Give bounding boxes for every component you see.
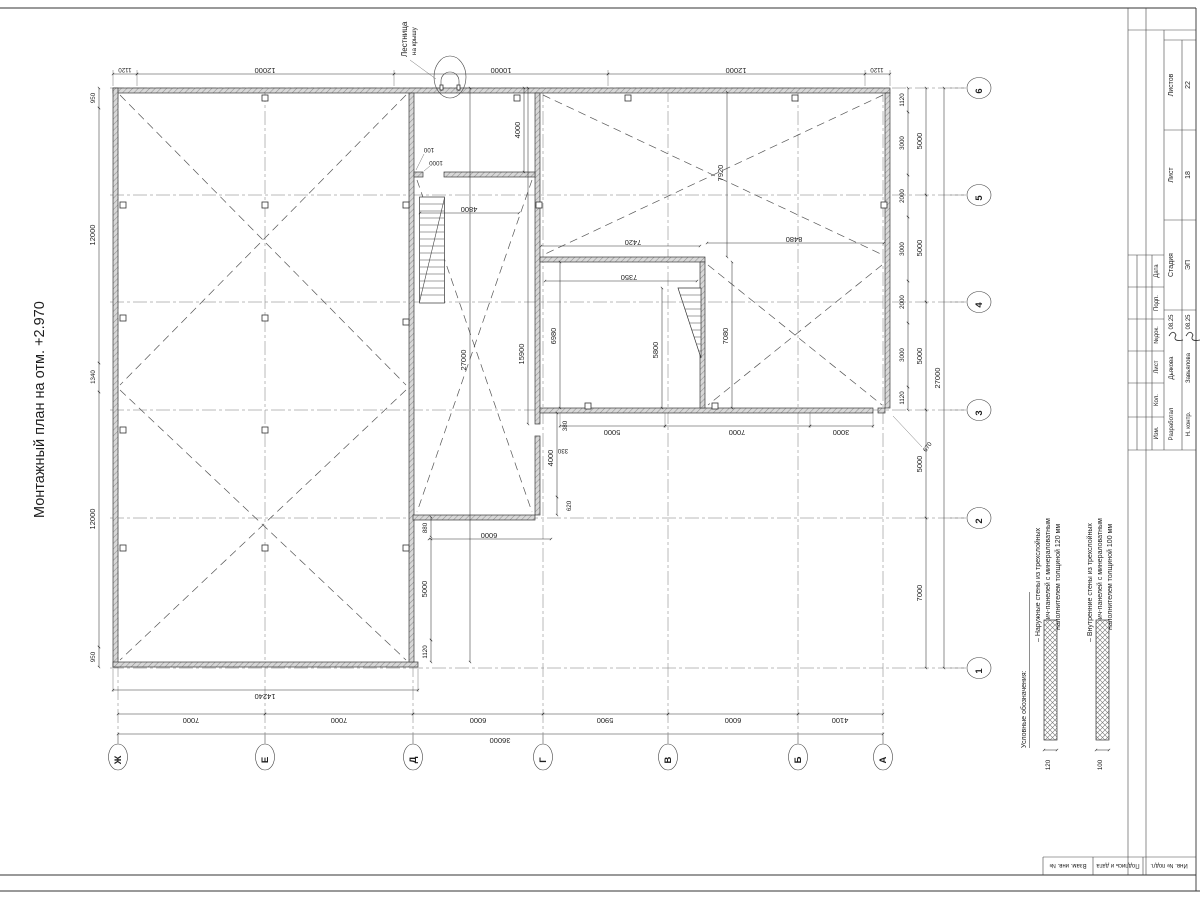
tb-col-sign: Подп. xyxy=(1154,295,1160,311)
dim-text: 7000 xyxy=(331,716,348,725)
axis-letter: А xyxy=(878,756,889,763)
dim-text: 880 xyxy=(422,522,429,533)
stair-right-room xyxy=(678,288,701,358)
ladder-callout-line1: Лестница xyxy=(400,21,409,57)
axis-letter: В xyxy=(663,756,674,763)
legend-item2-line: – Внутренние стены из трехслойных xyxy=(1086,523,1094,642)
legend-item1-line: наполнителем толщиной 120 мм xyxy=(1054,524,1062,630)
dim-text: 6000 xyxy=(481,531,498,540)
dim-text: 4000 xyxy=(546,450,555,467)
tb-col-qty: Кол. xyxy=(1154,394,1160,406)
dim-text: 4100 xyxy=(832,716,849,725)
axis-letter: Д xyxy=(408,756,419,763)
dim-text: 3000 xyxy=(899,136,906,150)
dim-text: 3000 xyxy=(899,348,906,362)
dim-text: 7000 xyxy=(915,585,924,602)
dim-text: 5000 xyxy=(420,581,429,598)
axis-letter: Ж xyxy=(113,755,124,765)
legend-wall-symbol-120 xyxy=(1044,620,1057,740)
axis-letter: Б xyxy=(793,756,804,763)
dim-text: 12000 xyxy=(255,66,276,75)
legend-title: Условные обозначения: xyxy=(1020,670,1028,748)
dim-text: 12000 xyxy=(88,509,97,530)
roof-ladder: Лестница на крышу xyxy=(400,21,466,98)
tb-dev-name: Дьякова xyxy=(1169,356,1175,380)
axis-letter: Г xyxy=(538,757,549,763)
dim-text: 12000 xyxy=(88,225,97,246)
axis-letter: Е xyxy=(260,757,271,763)
dim-text: 7000 xyxy=(183,716,200,725)
dim-text: 1120 xyxy=(870,66,884,73)
dim-text: 27000 xyxy=(459,350,468,371)
dim-text: 36000 xyxy=(490,736,511,745)
dim-text: 7080 xyxy=(721,328,730,345)
walls xyxy=(113,88,890,667)
dim-text: 8480 xyxy=(786,235,803,244)
dim-col-right-mid: 5000 5000 5000 5000 7000 xyxy=(915,88,926,668)
dim-text: 330 xyxy=(557,447,568,454)
dim-text: 1120 xyxy=(899,391,906,405)
dim-row-top: 1120 12000 10000 12000 1120 xyxy=(113,66,890,86)
dim-text: 380 xyxy=(562,420,569,431)
dim-text: 620 xyxy=(566,500,573,511)
dim-text: 2000 xyxy=(899,189,906,203)
dim-text: 5000 xyxy=(915,456,924,473)
tb-chk-label: Н. контр. xyxy=(1186,411,1192,436)
legend-wall-symbol-100 xyxy=(1096,620,1109,740)
tb-stage-value: ЭП xyxy=(1185,260,1192,270)
page-title: Монтажный план на отм. +2.970 xyxy=(32,301,48,518)
sheet-frame xyxy=(0,8,1200,891)
dim-text: 7350 xyxy=(621,273,638,282)
tb-col-doc: №док. xyxy=(1153,326,1160,344)
tb-stage-label: Стадия xyxy=(1168,253,1175,277)
drawing-sheet: Монтажный план на отм. +2.970 xyxy=(0,0,1200,900)
dim-text: 5900 xyxy=(597,716,614,725)
dim-text: 7000 xyxy=(729,428,746,437)
dim-text: 12000 xyxy=(726,66,747,75)
strip-podpis-data: Подпись и дата xyxy=(1096,862,1140,868)
dim-text: 5000 xyxy=(604,428,621,437)
dim-text: 5000 xyxy=(915,240,924,257)
axis-number: 2 xyxy=(974,518,985,523)
dim-text: 670 xyxy=(922,440,934,453)
tb-sheet-label: Лист xyxy=(1168,167,1175,183)
tb-sheet-value: 18 xyxy=(1185,171,1192,179)
axis-number: 6 xyxy=(974,88,985,93)
tb-dev-date: 08.25 xyxy=(1169,314,1175,330)
legend: Условные обозначения: – Наружные стены и… xyxy=(1020,518,1114,770)
dim-col-right-total: 27000 xyxy=(933,88,944,668)
dim-text: 950 xyxy=(90,92,97,103)
legend-item2-line: наполнителем толщиной 100 мм xyxy=(1106,524,1114,630)
dim-text: 950 xyxy=(90,651,97,662)
dim-text: 100 xyxy=(423,146,434,153)
dim-text: 7920 xyxy=(716,165,725,182)
axis-bubbles-right: 6 5 4 3 2 1 xyxy=(950,78,991,679)
dim-text: 3000 xyxy=(833,428,850,437)
dim-text: 1340 xyxy=(90,370,97,384)
bracing-diagonals xyxy=(120,95,883,660)
strip-inv-podl: Инв. № подл. xyxy=(1150,862,1188,869)
dim-text: 7420 xyxy=(625,238,642,247)
axis-number: 3 xyxy=(974,410,985,415)
dim-col-left: 950 12000 1340 12000 950 xyxy=(88,88,99,667)
dim-text: 5000 xyxy=(915,348,924,365)
title-block: Листов 22 Лист 18 Стадия ЭП Дата Подп. №… xyxy=(1128,30,1200,450)
dim-text: 5800 xyxy=(651,342,660,359)
dim-text: 1120 xyxy=(422,645,429,659)
tb-col-date: Дата xyxy=(1154,264,1160,278)
tb-chk-name: Завьялова xyxy=(1186,352,1192,383)
tb-chk-date: 08.25 xyxy=(1186,314,1192,330)
tb-col-sheet: Лист xyxy=(1154,360,1160,373)
axis-number: 5 xyxy=(974,195,985,201)
dim-text: 5000 xyxy=(915,133,924,150)
dim-text: 4800 xyxy=(461,205,478,214)
dim-text: 10000 xyxy=(491,66,512,75)
tb-dev-label: Разработал xyxy=(1169,407,1175,440)
dim-text: 14240 xyxy=(255,692,276,701)
tb-sheets-value: 22 xyxy=(1185,81,1192,89)
legend-item1-line: – Наружные стены из трехслойных xyxy=(1034,527,1042,642)
dim-text: 1120 xyxy=(118,66,132,73)
dim-text: 4000 xyxy=(513,122,522,139)
dim-text: 15900 xyxy=(517,344,526,365)
axis-number: 1 xyxy=(974,668,985,674)
tb-chk-signature xyxy=(1186,332,1200,340)
dim-text: 27000 xyxy=(933,368,942,389)
dim-text: 1000 xyxy=(429,159,443,166)
legend-thickness-120: 120 xyxy=(1045,759,1052,770)
axis-number: 4 xyxy=(974,302,985,308)
tb-sheets-label: Листов xyxy=(1168,73,1175,96)
dim-text: 6980 xyxy=(549,328,558,345)
dim-text: 1120 xyxy=(899,93,906,107)
ladder-callout-line2: на крышу xyxy=(411,26,418,55)
dim-rows-bottom: 14240 7000 7000 6000 5900 6000 4100 3600… xyxy=(113,669,883,745)
strip-vzam-inv: Взам. инв. № xyxy=(1049,862,1086,869)
tb-col-rev: Изм. xyxy=(1154,426,1160,439)
filing-strip: Взам. инв. № Подпись и дата Инв. № подл. xyxy=(1043,857,1196,875)
tb-dev-signature xyxy=(1169,332,1183,340)
dim-text: 2000 xyxy=(899,295,906,309)
dim-col-right-inner: 1120 3000 2000 3000 2000 3000 1120 xyxy=(899,88,908,410)
dim-text: 6000 xyxy=(725,716,742,725)
dim-text: 3000 xyxy=(899,242,906,256)
dim-text: 6000 xyxy=(470,716,487,725)
legend-thickness-100: 100 xyxy=(1097,759,1104,770)
column-markers xyxy=(120,95,887,551)
